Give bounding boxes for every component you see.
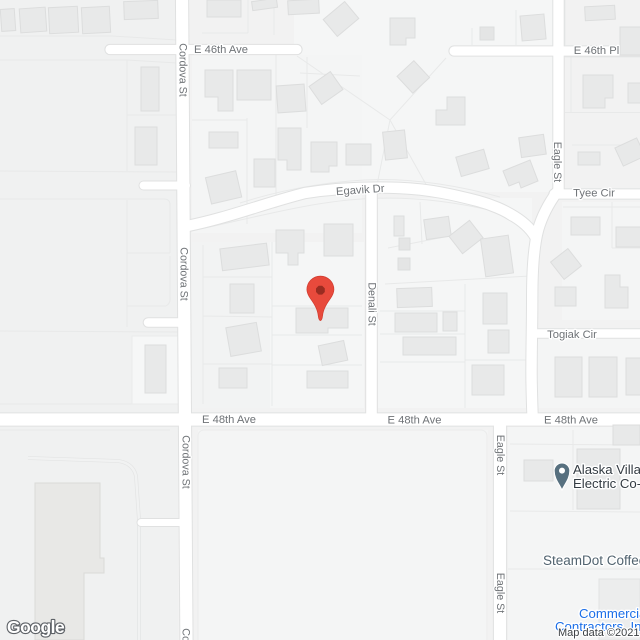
svg-text:E 46th Ave: E 46th Ave: [194, 44, 248, 56]
svg-text:Cordova St: Cordova St: [180, 628, 192, 640]
svg-text:Alaska Village: Alaska Village: [573, 462, 640, 477]
svg-text:Electric Co-op: Electric Co-op: [573, 476, 640, 491]
svg-text:Eagle St: Eagle St: [494, 573, 506, 613]
svg-text:E 46th Pl: E 46th Pl: [574, 45, 619, 57]
svg-text:Cordova St: Cordova St: [180, 435, 192, 488]
svg-text:E 48th Ave: E 48th Ave: [388, 415, 442, 427]
svg-text:Denali St: Denali St: [366, 282, 378, 325]
svg-text:Google: Google: [7, 617, 65, 637]
svg-text:E 48th Ave: E 48th Ave: [202, 414, 256, 426]
svg-text:Cordova St: Cordova St: [177, 43, 189, 96]
svg-text:E 48th Ave: E 48th Ave: [544, 415, 598, 427]
svg-text:SteamDot Coffee: SteamDot Coffee: [543, 553, 640, 568]
svg-text:Map data ©2021: Map data ©2021: [558, 627, 640, 639]
svg-text:Tyee Cir: Tyee Cir: [573, 188, 615, 200]
svg-text:Cordova St: Cordova St: [178, 247, 190, 300]
svg-text:Eagle St: Eagle St: [494, 435, 506, 475]
svg-text:Eagle St: Eagle St: [551, 142, 563, 182]
svg-text:Togiak Cir: Togiak Cir: [547, 329, 597, 341]
